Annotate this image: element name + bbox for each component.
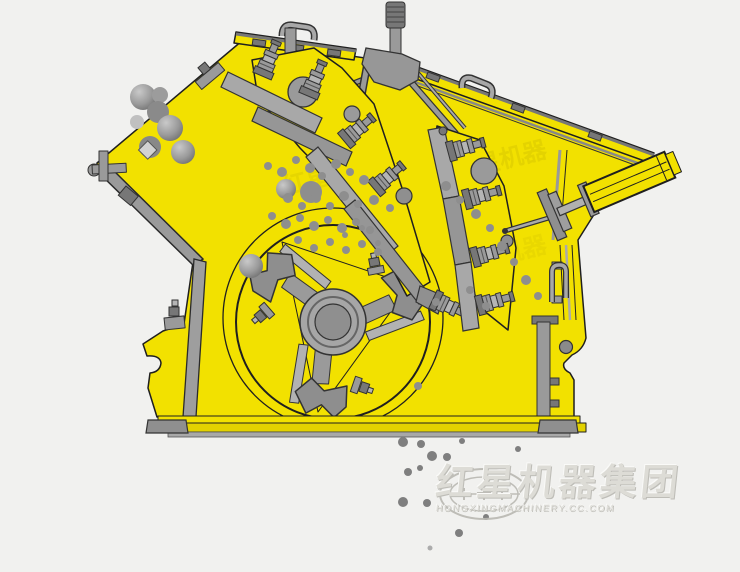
rotor-hub (300, 289, 366, 355)
plate-hole (396, 188, 412, 204)
base-frame (146, 416, 586, 437)
foot-pad (538, 420, 578, 433)
wall-hole (560, 341, 573, 354)
plate-hole (471, 158, 497, 184)
wall-liner (537, 322, 550, 418)
pivot (439, 127, 447, 135)
impact-crusher-diagram: 红星机器 红星机器 红星机器 (0, 0, 740, 572)
plate-hole (344, 106, 360, 122)
knurled-knob (386, 2, 405, 28)
foot-pad (146, 420, 188, 433)
crusher-drawing: 红星机器 红星机器 红星机器 (0, 0, 740, 572)
